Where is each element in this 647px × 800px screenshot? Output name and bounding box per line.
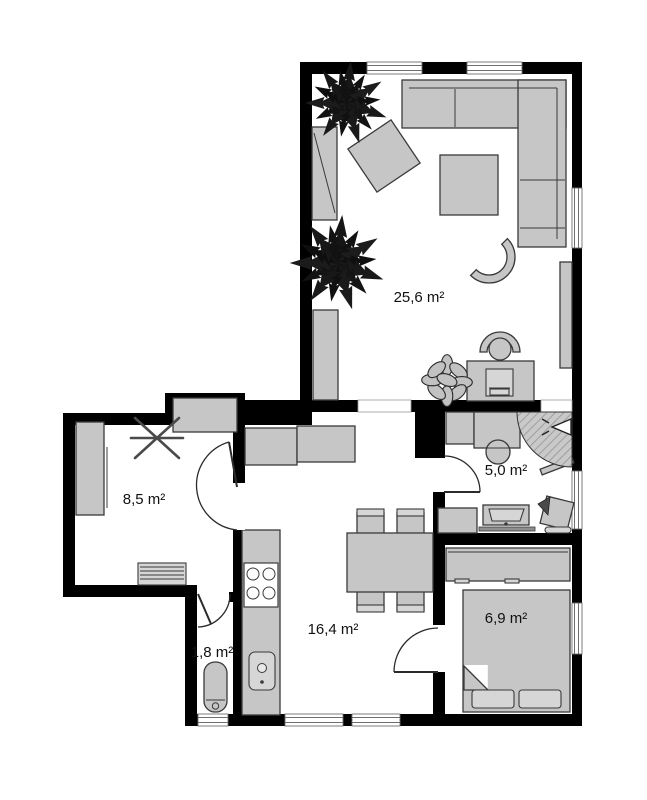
room-label-living: 25,6 m² (394, 289, 445, 306)
pillow (472, 690, 514, 708)
entrance-door (517, 412, 572, 467)
window-bedroom-right (572, 603, 582, 654)
window-top-2 (467, 62, 522, 74)
floor-plan-page: 25,6 m² 8,5 m² 1,8 m² (0, 0, 647, 800)
desk-chair (480, 332, 520, 360)
window-living-right (572, 188, 582, 248)
window-kitchen-bottom-2 (352, 714, 400, 726)
wall-kitchen-bedroom-lower (433, 672, 445, 726)
desk (467, 361, 534, 401)
kitchen-cabinet-1 (245, 428, 297, 465)
wall-hall-bedroom (433, 533, 582, 545)
room-label-8-5: 8,5 m² (123, 491, 166, 508)
niche-wardrobe (173, 398, 237, 432)
plant-icon (422, 355, 473, 407)
wardrobe (76, 422, 107, 515)
wall-room85-bottom (63, 585, 197, 597)
bedroom-wardrobe (446, 548, 570, 583)
floor-plan: 25,6 m² 8,5 m² 1,8 m² (0, 0, 647, 800)
pillow (519, 690, 561, 708)
radiator (138, 563, 186, 585)
kitchen-cabinet-2 (297, 426, 355, 462)
door-wc (198, 594, 230, 627)
hall-chair (486, 440, 510, 464)
coffee-table (440, 155, 498, 215)
window-top-1 (367, 62, 422, 74)
wall-pier (415, 400, 445, 458)
wall-room85-left (63, 413, 75, 597)
room-label-wc: 1,8 m² (191, 644, 234, 661)
wall-kitchen-bedroom-upper (433, 545, 445, 625)
hall-tilted-chair (538, 496, 574, 533)
window-hall-right (572, 471, 582, 529)
hall-cabinet-bottom (438, 508, 477, 533)
room-label-bedroom: 6,9 m² (485, 610, 528, 627)
dining-table (347, 533, 433, 592)
room-8-5: 8,5 m² (76, 398, 237, 585)
dining-chair (357, 509, 384, 535)
window-wc-bottom (198, 714, 228, 726)
hall-cabinet-top (446, 412, 474, 444)
bed (463, 590, 570, 712)
shelf-right-wall (560, 262, 572, 368)
dining-chair (397, 509, 424, 535)
cabinet-left-lower (313, 310, 338, 400)
door-hall-kitchen (433, 456, 480, 492)
passage-living-kitchen (358, 400, 411, 412)
wall-top (300, 62, 582, 74)
sink (249, 652, 275, 690)
room-wc: 1,8 m² (191, 644, 234, 712)
toilet (204, 662, 227, 712)
cabinet-left-upper (312, 127, 337, 220)
dining-set (347, 509, 433, 612)
tv-stand (479, 505, 535, 531)
door-bedroom (394, 626, 445, 672)
window-kitchen-bottom-1 (285, 714, 343, 726)
wall-mass (238, 400, 312, 425)
stove (244, 563, 278, 607)
room-label-kitchen: 16,4 m² (308, 621, 359, 638)
room-living: 25,6 m² (290, 61, 572, 407)
entrance-doorway (541, 400, 572, 412)
room-bedroom: 6,9 m² (446, 548, 570, 712)
wall-living-left (300, 62, 312, 425)
room-label-hall: 5,0 m² (485, 462, 528, 479)
